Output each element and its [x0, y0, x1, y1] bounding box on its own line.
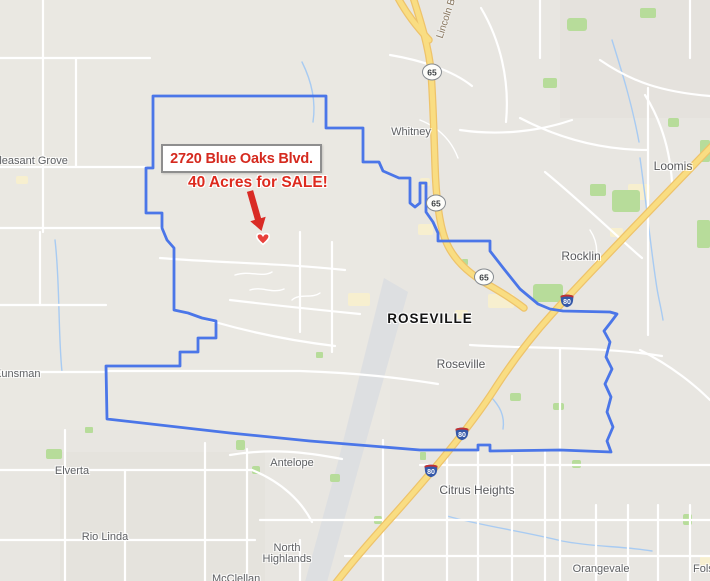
mcclellan-tint: [60, 452, 265, 581]
city-label-roseville-large: ROSEVILLE: [387, 313, 473, 324]
rural-tint: [0, 0, 390, 430]
i80-shield-icon: 80: [559, 292, 576, 308]
place-label-whitney: Whitney: [391, 127, 431, 138]
hwy-65-shield-icon: 65: [422, 64, 442, 81]
svg-text:80: 80: [563, 299, 571, 306]
annotation-title-box: 2720 Blue Oaks Blvd.: [161, 144, 322, 173]
hwy-65-shield-icon: 65: [426, 195, 446, 212]
place-label-antelope: Antelope: [270, 458, 313, 469]
place-label-mcclellan: McClellan: [212, 574, 260, 581]
annotation-subtitle: 40 Acres for SALE!: [188, 174, 328, 192]
hwy-65-shield-icon: 65: [474, 269, 494, 286]
svg-text:80: 80: [427, 469, 435, 476]
place-label-folsom: Folsom: [693, 564, 710, 575]
annotation-title: 2720 Blue Oaks Blvd.: [170, 151, 313, 167]
place-label-pleasant-grove: Pleasant Grove: [0, 156, 68, 167]
place-label-roseville: Roseville: [437, 359, 486, 370]
place-label-citrus-heights: Citrus Heights: [439, 485, 514, 496]
place-label-orangevale: Orangevale: [573, 564, 630, 575]
i80-shield-icon: 80: [454, 425, 471, 441]
svg-text:80: 80: [458, 432, 466, 439]
map-graphics: [0, 0, 710, 581]
place-label-kunsman: Kunsman: [0, 369, 40, 380]
place-label-north-highlands-line2: Highlands: [263, 554, 312, 565]
place-label-rocklin: Rocklin: [561, 251, 600, 262]
place-label-elverta: Elverta: [55, 466, 89, 477]
i80-shield-icon: 80: [423, 462, 440, 478]
place-label-rio-linda: Rio Linda: [82, 532, 128, 543]
map-canvas[interactable]: Pleasant Grove Whitney Loomis Rocklin RO…: [0, 0, 710, 581]
rocklin-tint: [560, 0, 710, 118]
place-label-loomis: Loomis: [654, 161, 693, 172]
